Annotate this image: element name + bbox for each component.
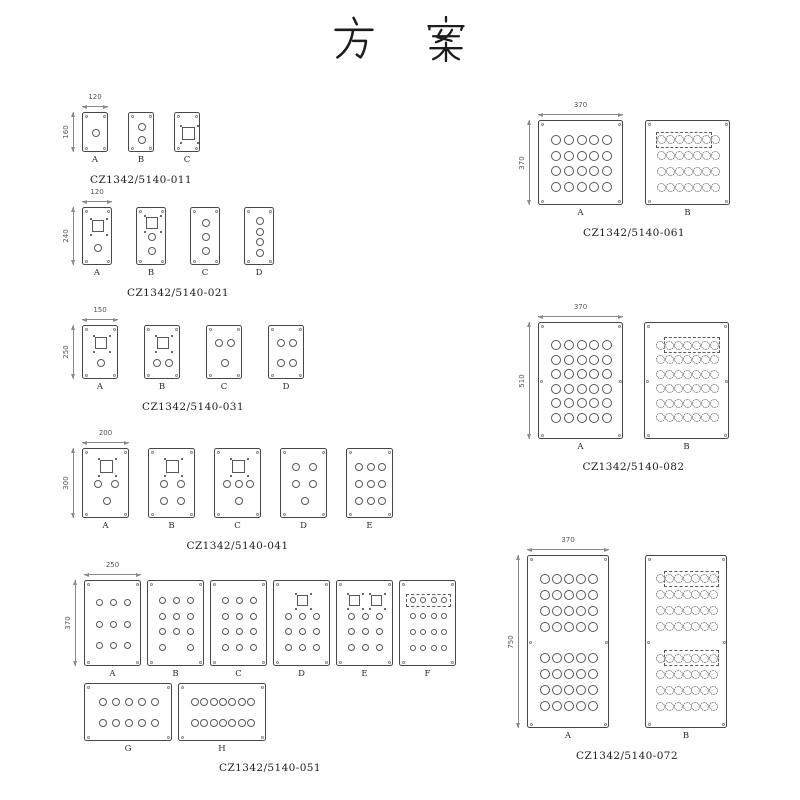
hole-circle [665, 606, 674, 615]
screw-dot [85, 513, 88, 516]
screw-dot [247, 260, 250, 263]
panel-row: AB [538, 120, 730, 218]
screw-dot [530, 558, 533, 561]
hole-circle [576, 622, 586, 632]
hole-circle [431, 613, 437, 619]
square-corner-dot [155, 335, 157, 337]
mounting-square [95, 337, 107, 349]
scheme-group: ABCZ1342/5140-072370750 [509, 538, 727, 762]
square-corner-dot [106, 234, 108, 236]
hole-circle [674, 370, 683, 379]
mounting-square [166, 460, 179, 473]
hole-circle [683, 590, 692, 599]
panel-unit: B [136, 207, 166, 278]
hole-circle [700, 654, 709, 663]
hole-circle [431, 597, 437, 603]
dim-line [518, 555, 519, 728]
dim-height-label: 300 [62, 476, 70, 489]
hole-circle [250, 644, 257, 651]
screw-dot [217, 513, 220, 516]
screw-dot [103, 147, 106, 150]
group-code: CZ1342/5140-082 [538, 461, 729, 473]
screw-dot [150, 661, 153, 664]
hole-circle [683, 413, 692, 422]
hole-circle [683, 399, 692, 408]
screw-dot [648, 200, 651, 203]
screw-dot [325, 583, 328, 586]
hole-circle [221, 359, 229, 367]
panel [644, 322, 729, 439]
hole-circle [710, 341, 719, 350]
square-corner-dot [181, 475, 183, 477]
panel-row: ABC [82, 112, 200, 165]
dim-width-label: 200 [82, 429, 129, 437]
hole-circle [376, 628, 383, 635]
screw-dot [618, 200, 621, 203]
title-char-an [423, 16, 469, 62]
hole-circle [564, 151, 574, 161]
hole-circle [674, 355, 683, 364]
screw-dot [124, 513, 127, 516]
screw-dot [261, 736, 264, 739]
panel-row: ABCDE [82, 448, 393, 531]
screw-dot [725, 123, 728, 126]
screw-dot [209, 328, 212, 331]
hole-circle [159, 628, 166, 635]
screw-dot [167, 686, 170, 689]
screw-dot [725, 380, 728, 383]
hole-circle [222, 613, 229, 620]
hole-circle [674, 384, 683, 393]
square-corner-dot [109, 335, 111, 337]
hole-circle [552, 574, 562, 584]
screw-dot [725, 200, 728, 203]
screw-dot [648, 123, 651, 126]
screw-dot [237, 328, 240, 331]
hole-circle [159, 597, 166, 604]
panel-unit: D [268, 325, 304, 392]
screw-dot [195, 115, 198, 118]
dim-arrow [516, 555, 520, 560]
screw-dot [349, 513, 352, 516]
panel [128, 112, 154, 152]
hole-circle [564, 622, 574, 632]
hole-circle [710, 370, 719, 379]
hole-circle [665, 702, 674, 711]
screw-dot [322, 451, 325, 454]
screw-dot [283, 451, 286, 454]
panel-letter: C [202, 269, 209, 278]
hole-circle [683, 654, 692, 663]
panel [206, 325, 242, 379]
hole-circle [709, 686, 718, 695]
panel-letter: F [425, 670, 431, 679]
panel-unit: A [82, 112, 108, 165]
panel [244, 207, 274, 265]
hole-circle [576, 685, 586, 695]
panel [336, 580, 393, 666]
group-code: CZ1342/5140-072 [527, 750, 727, 762]
hole-circle [674, 413, 683, 422]
hole-circle [219, 698, 227, 706]
dim-arrow [71, 448, 75, 453]
hole-circle [684, 183, 693, 192]
hole-circle [151, 698, 159, 706]
hole-circle [362, 644, 369, 651]
hole-circle [665, 384, 674, 393]
square-corner-dot [384, 608, 386, 610]
panel-unit: A [538, 322, 623, 452]
hole-circle [710, 384, 719, 393]
hole-circle [702, 151, 711, 160]
hole-circle [665, 370, 674, 379]
hole-circle [665, 413, 674, 422]
hole-circle [711, 167, 720, 176]
hole-circle [709, 590, 718, 599]
screw-dot [149, 115, 152, 118]
dim-arrow [103, 105, 108, 109]
screw-dot [85, 115, 88, 118]
hole-circle [602, 340, 612, 350]
screw-dot [388, 583, 391, 586]
hole-circle [367, 463, 375, 471]
hole-circle [700, 622, 709, 631]
hole-circle [602, 182, 612, 192]
square-corner-dot [109, 351, 111, 353]
hole-circle [602, 369, 612, 379]
hole-circle [540, 685, 550, 695]
hole-circle [709, 654, 718, 663]
square-corner-dot [247, 458, 249, 460]
hole-circle [665, 355, 674, 364]
hole-circle [683, 606, 692, 615]
panel-letter: C [234, 522, 241, 531]
hole-circle [124, 642, 131, 649]
panel-unit: D [273, 580, 330, 679]
hole-circle [665, 654, 674, 663]
hole-circle [222, 597, 229, 604]
dim-width: 370 [527, 538, 609, 552]
screw-dot [388, 451, 391, 454]
dim-width-label: 120 [82, 93, 108, 101]
hole-circle [576, 669, 586, 679]
group-code: CZ1342/5140-021 [82, 287, 274, 299]
dim-height-label: 370 [518, 156, 526, 169]
square-corner-dot [230, 458, 232, 460]
hole-circle [410, 645, 416, 651]
panel-unit: C [190, 207, 220, 278]
screw-dot [325, 661, 328, 664]
hole-circle [138, 719, 146, 727]
hole-circle [666, 183, 675, 192]
screw-dot [276, 661, 279, 664]
screw-dot [167, 736, 170, 739]
hole-circle [702, 167, 711, 176]
screw-dot [151, 451, 154, 454]
hole-circle [700, 670, 709, 679]
square-corner-dot [247, 475, 249, 477]
screw-dot [181, 686, 184, 689]
panel-unit: C [174, 112, 200, 165]
screw-dot [190, 513, 193, 516]
dim-arrow [618, 315, 623, 319]
group-code: CZ1342/5140-011 [82, 174, 200, 186]
hole-circle [692, 355, 701, 364]
hole-circle [228, 698, 236, 706]
panel [210, 580, 267, 666]
square-corner-dot [155, 351, 157, 353]
panel-letter: C [184, 156, 191, 165]
hole-circle [666, 167, 675, 176]
hole-circle [250, 597, 257, 604]
screw-dot [147, 328, 150, 331]
hole-circle [223, 480, 231, 488]
panel [174, 112, 200, 152]
hole-circle [577, 413, 587, 423]
hole-circle [138, 123, 146, 131]
hole-circle [138, 698, 146, 706]
dim-width-label: 150 [82, 306, 118, 314]
group-code: CZ1342/5140-041 [82, 540, 393, 552]
screw-dot [136, 583, 139, 586]
hole-circle [148, 233, 156, 241]
hole-circle [683, 384, 692, 393]
hole-circle [588, 590, 598, 600]
hole-circle [656, 670, 665, 679]
square-corner-dot [369, 608, 371, 610]
hole-circle [256, 228, 264, 236]
panel-letter: C [235, 670, 242, 679]
screw-dot [103, 115, 106, 118]
hole-circle [693, 151, 702, 160]
hole-circle [540, 669, 550, 679]
square-corner-dot [347, 593, 349, 595]
hole-circle [187, 644, 194, 651]
dim-arrow [113, 318, 118, 322]
hole-circle [222, 644, 229, 651]
hole-circle [564, 606, 574, 616]
hole-circle [210, 719, 218, 727]
screw-dot [261, 686, 264, 689]
hole-circle [692, 413, 701, 422]
screw-dot [193, 260, 196, 263]
panel-row: ABCD [82, 207, 274, 278]
panel-unit: B [128, 112, 154, 165]
hole-circle [692, 384, 701, 393]
screw-dot [269, 210, 272, 213]
hole-circle [656, 622, 665, 631]
hole-circle [665, 399, 674, 408]
panel-unit: H [178, 683, 266, 754]
dim-line [73, 325, 74, 379]
panel-row: GH [84, 683, 456, 754]
scheme-group: ABCDEFGHCZ1342/5140-051250370 [66, 563, 456, 774]
hole-circle [238, 698, 246, 706]
hole-circle [701, 355, 710, 364]
hole-circle [564, 182, 574, 192]
screw-dot [85, 260, 88, 263]
panel-unit: B [645, 555, 727, 741]
hole-circle [552, 701, 562, 711]
hole-circle [247, 698, 255, 706]
hole-circle [177, 480, 185, 488]
dim-line [82, 442, 129, 443]
screw-dot [647, 434, 650, 437]
hole-circle [236, 597, 243, 604]
hole-circle [588, 685, 598, 695]
dim-height-label: 510 [518, 374, 526, 387]
hole-circle [202, 219, 210, 227]
hole-circle [709, 574, 718, 583]
hole-circle [589, 355, 599, 365]
hole-circle [692, 341, 701, 350]
hole-circle [709, 670, 718, 679]
screw-dot [402, 583, 405, 586]
hole-circle [691, 686, 700, 695]
square-corner-dot [197, 142, 199, 144]
hole-circle [577, 151, 587, 161]
screw-dot [213, 661, 216, 664]
hole-circle [289, 359, 297, 367]
panel-letter: G [125, 745, 132, 754]
dim-height-label: 160 [62, 125, 70, 138]
hole-circle [309, 480, 317, 488]
hole-circle [292, 463, 300, 471]
hole-circle [235, 497, 243, 505]
dim-width-label: 250 [84, 561, 141, 569]
panel-unit: G [84, 683, 172, 754]
group-code: CZ1342/5140-031 [82, 401, 304, 413]
square-corner-dot [144, 215, 146, 217]
screw-dot [85, 328, 88, 331]
panel-unit: C [214, 448, 261, 531]
screw-dot [722, 723, 725, 726]
dim-arrow [71, 112, 75, 117]
hole-circle [692, 399, 701, 408]
dim-line [538, 114, 623, 115]
screw-dot [190, 451, 193, 454]
hole-circle [657, 167, 666, 176]
hole-circle [551, 151, 561, 161]
hole-circle [552, 685, 562, 695]
hole-circle [656, 686, 665, 695]
hole-circle [187, 628, 194, 635]
panel-letter: H [218, 745, 225, 754]
hole-circle [348, 613, 355, 620]
dim-width-label: 120 [82, 188, 112, 196]
dim-width: 250 [84, 563, 141, 577]
screw-dot [299, 328, 302, 331]
hole-circle [110, 599, 117, 606]
hole-circle [285, 628, 292, 635]
scheme-group: ABCDCZ1342/5140-021120240 [64, 190, 274, 299]
dim-width-label: 370 [538, 101, 623, 109]
dim-arrow [71, 513, 75, 518]
panel-unit: B [645, 120, 730, 218]
hole-circle [602, 384, 612, 394]
dim-height-label: 370 [64, 616, 72, 629]
hole-circle [551, 135, 561, 145]
hole-circle [683, 670, 692, 679]
screw-dot [349, 451, 352, 454]
square-corner-dot [310, 608, 312, 610]
square-corner-dot [106, 218, 108, 220]
hole-circle [674, 654, 683, 663]
screw-dot [175, 374, 178, 377]
screw-dot [139, 210, 142, 213]
hole-circle [367, 480, 375, 488]
hole-circle [589, 151, 599, 161]
screw-dot [618, 325, 621, 328]
panel-letter: C [221, 383, 228, 392]
hole-circle [701, 341, 710, 350]
hole-circle [577, 340, 587, 350]
screw-dot [87, 736, 90, 739]
square-corner-dot [90, 218, 92, 220]
hole-circle [110, 621, 117, 628]
hole-circle [588, 574, 598, 584]
hole-circle [691, 702, 700, 711]
dim-width: 370 [538, 103, 623, 117]
dim-width: 200 [82, 431, 129, 445]
square-corner-dot [180, 125, 182, 127]
hole-circle [693, 183, 702, 192]
dim-height: 750 [509, 555, 523, 728]
dim-arrow [71, 374, 75, 379]
square-corner-dot [384, 593, 386, 595]
hole-circle [552, 590, 562, 600]
dim-arrow [107, 200, 112, 204]
panel [82, 325, 118, 379]
screw-dot [161, 260, 164, 263]
panel [82, 448, 129, 518]
panel [82, 207, 112, 265]
hole-circle [160, 497, 168, 505]
panel-unit: B [148, 448, 195, 531]
hole-circle [355, 480, 363, 488]
hole-circle [410, 613, 416, 619]
panel-letter: A [109, 670, 115, 679]
dim-arrow [527, 322, 531, 327]
screw-dot [271, 374, 274, 377]
screw-dot [195, 147, 198, 150]
hole-circle [125, 698, 133, 706]
hole-circle [540, 574, 550, 584]
dim-line [73, 448, 74, 518]
screw-dot [322, 513, 325, 516]
dim-arrow [71, 260, 75, 265]
hole-circle [589, 166, 599, 176]
hole-circle [589, 384, 599, 394]
hole-circle [228, 719, 236, 727]
screw-dot [85, 147, 88, 150]
hole-circle [692, 370, 701, 379]
screw-dot [177, 147, 180, 150]
dim-arrow [73, 580, 77, 585]
dim-arrow [71, 147, 75, 152]
screw-dot [451, 661, 454, 664]
screw-dot [136, 661, 139, 664]
dim-arrow [71, 325, 75, 330]
hole-circle [159, 613, 166, 620]
screw-dot [724, 434, 727, 437]
hole-circle [683, 686, 692, 695]
screw-dot [85, 210, 88, 213]
panel [214, 448, 261, 518]
screw-dot [161, 210, 164, 213]
hole-circle [236, 644, 243, 651]
hole-circle [378, 497, 386, 505]
